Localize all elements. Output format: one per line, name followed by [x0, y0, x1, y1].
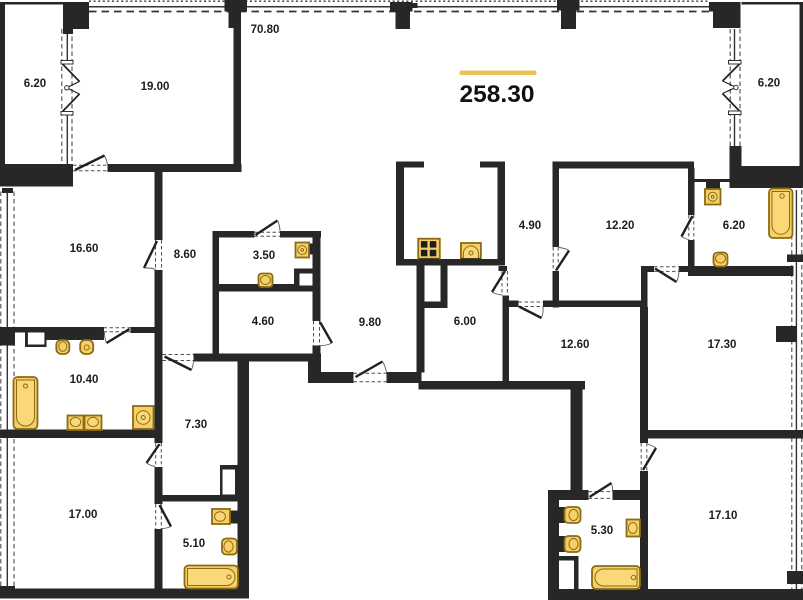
svg-text:9.80: 9.80 — [359, 317, 381, 329]
svg-text:17.10: 17.10 — [709, 510, 738, 522]
svg-text:70.80: 70.80 — [251, 24, 280, 36]
svg-text:4.90: 4.90 — [519, 220, 541, 232]
svg-text:4.60: 4.60 — [252, 316, 274, 328]
svg-text:17.00: 17.00 — [69, 509, 98, 521]
svg-text:10.40: 10.40 — [70, 374, 99, 386]
svg-text:5.30: 5.30 — [591, 525, 613, 537]
svg-text:258.30: 258.30 — [460, 81, 535, 108]
svg-text:6.00: 6.00 — [454, 316, 476, 328]
svg-text:6.20: 6.20 — [24, 78, 46, 90]
svg-text:12.20: 12.20 — [606, 220, 635, 232]
svg-text:8.60: 8.60 — [174, 249, 196, 261]
svg-text:16.60: 16.60 — [70, 243, 99, 255]
svg-text:6.20: 6.20 — [758, 78, 780, 90]
svg-text:3.50: 3.50 — [253, 250, 275, 262]
svg-text:19.00: 19.00 — [141, 81, 170, 93]
svg-text:6.20: 6.20 — [723, 220, 745, 232]
svg-text:7.30: 7.30 — [185, 419, 207, 431]
svg-text:12.60: 12.60 — [561, 339, 590, 351]
svg-text:5.10: 5.10 — [183, 538, 205, 550]
svg-text:17.30: 17.30 — [708, 339, 737, 351]
